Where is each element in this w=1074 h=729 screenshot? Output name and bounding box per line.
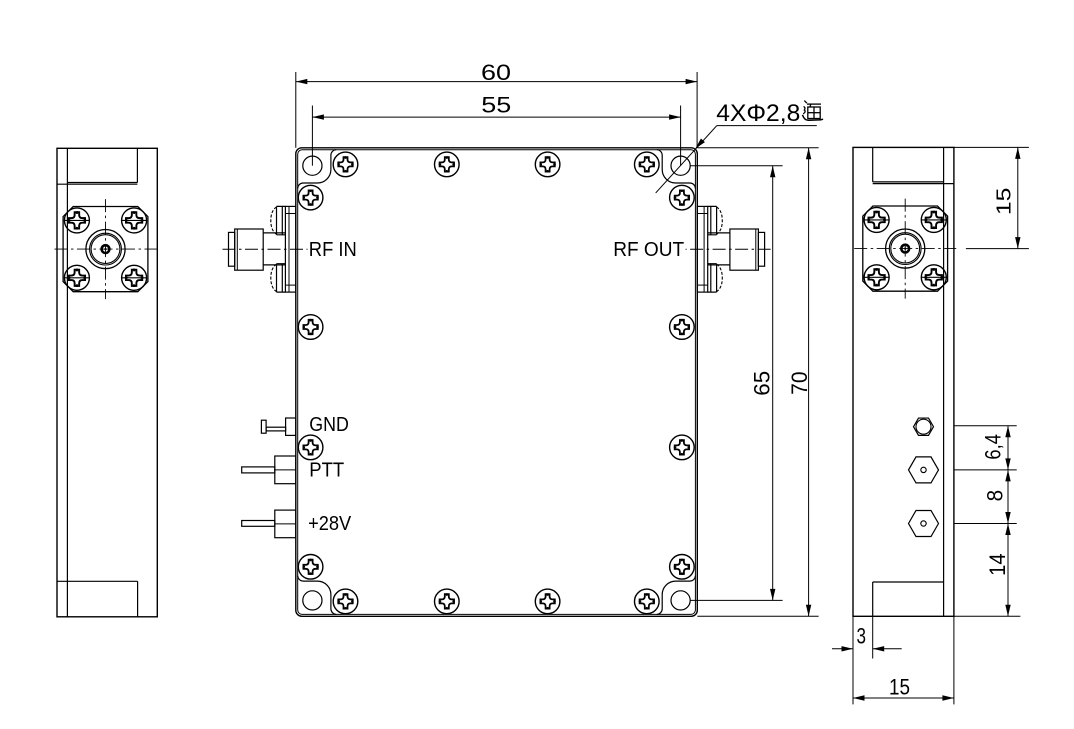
svg-text:+28V: +28V: [308, 513, 352, 535]
svg-text:6,4: 6,4: [981, 434, 1006, 460]
svg-text:15: 15: [889, 674, 910, 699]
svg-text:65: 65: [749, 371, 774, 396]
svg-text:RF OUT: RF OUT: [613, 239, 684, 261]
svg-text:55: 55: [481, 93, 511, 118]
svg-text:60: 60: [481, 60, 511, 85]
svg-text:15: 15: [993, 188, 1015, 216]
svg-text:4XΦ2,8: 4XΦ2,8: [716, 100, 800, 127]
svg-text:GND: GND: [309, 414, 349, 436]
svg-text:RF IN: RF IN: [309, 239, 357, 261]
svg-text:14: 14: [985, 553, 1010, 576]
svg-text:3: 3: [857, 623, 867, 648]
svg-text:PTT: PTT: [309, 459, 344, 481]
svg-text:70: 70: [787, 371, 812, 395]
svg-text:8: 8: [983, 490, 1008, 502]
